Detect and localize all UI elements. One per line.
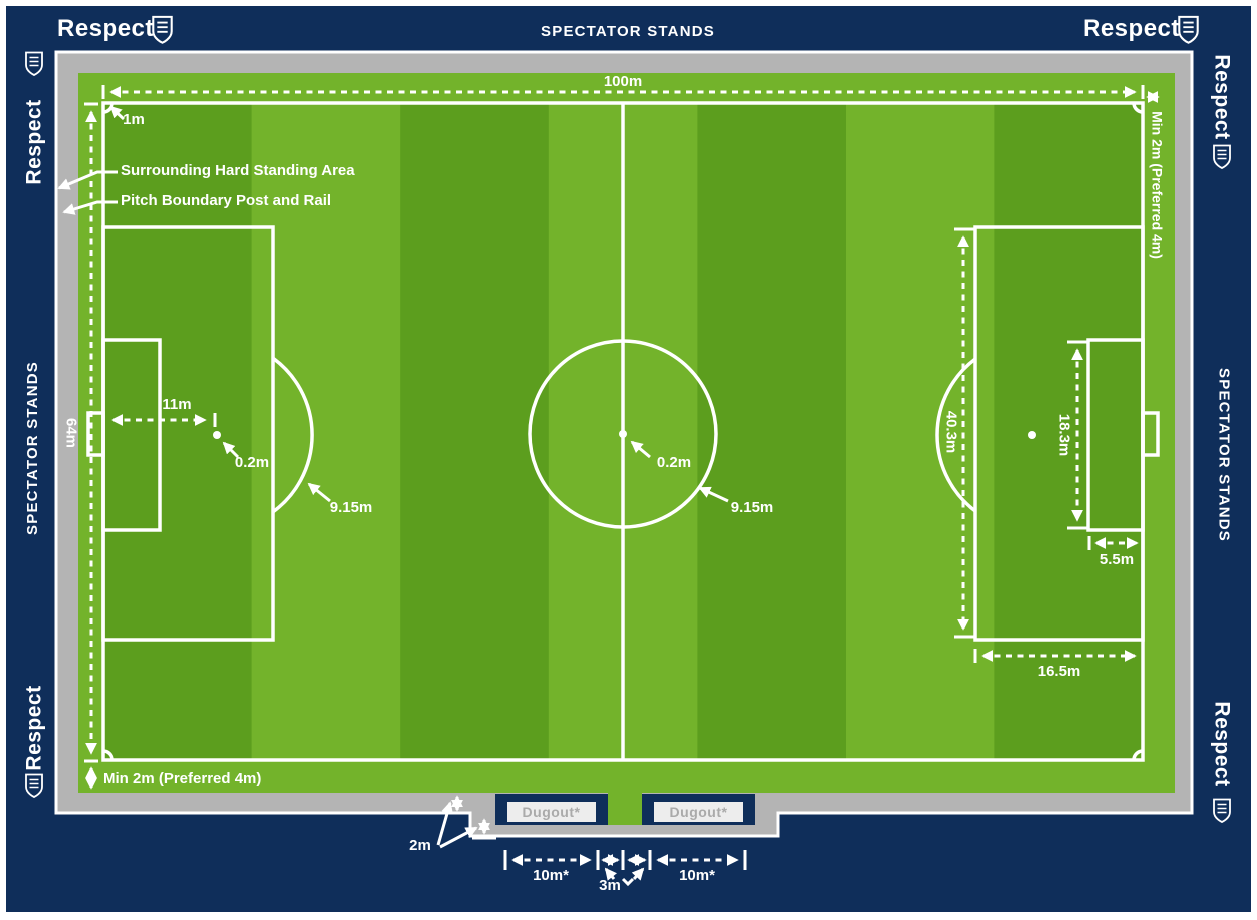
centre-spot xyxy=(619,430,627,438)
label-runoff-bottom: Min 2m (Preferred 4m) xyxy=(103,771,261,788)
label-runoff-right: Min 2m (Preferred 4m) xyxy=(1149,111,1164,259)
dugout-left-label: Dugout* xyxy=(507,802,596,822)
spectator-stands-left: SPECTATOR STANDS xyxy=(25,361,42,535)
label-centre-spot-diameter: 0.2m xyxy=(657,455,691,472)
label-boundary-offset: 1m xyxy=(123,112,145,129)
label-hard-standing: Surrounding Hard Standing Area xyxy=(121,163,355,180)
dugout-right-label: Dugout* xyxy=(654,802,743,822)
label-penalty-spot-diameter: 0.2m xyxy=(235,455,269,472)
label-goal-area-width: 18.3m xyxy=(1055,414,1072,457)
penalty-spot-right xyxy=(1028,431,1036,439)
label-penalty-spot-distance: 11m xyxy=(162,397,191,414)
label-goal-area-depth: 5.5m xyxy=(1100,552,1134,569)
label-post-and-rail: Pitch Boundary Post and Rail xyxy=(121,193,331,210)
label-dugout-gap: 3m xyxy=(599,878,621,895)
pitch-grass xyxy=(78,73,1175,825)
label-pitch-width: 64m xyxy=(62,418,79,448)
label-standing-depth: 2m xyxy=(409,838,431,855)
respect-logo-right-bottom: Respect xyxy=(1210,701,1233,786)
label-penalty-area-depth: 16.5m xyxy=(1038,664,1081,681)
label-dugout-width-right: 10m* xyxy=(679,868,715,885)
pitch-diagram: Respect Respect SPECTATOR STANDS Respect… xyxy=(0,0,1257,920)
label-penalty-arc-radius: 9.15m xyxy=(330,500,373,517)
respect-logo-top-right: Respect xyxy=(1083,16,1180,42)
label-dugout-width-left: 10m* xyxy=(533,868,569,885)
label-pitch-length: 100m xyxy=(604,74,642,91)
dugout-gap-grass xyxy=(608,793,642,825)
penalty-spot-left xyxy=(213,431,221,439)
label-centre-circle-radius: 9.15m xyxy=(731,500,774,517)
label-penalty-area-width: 40.3m xyxy=(942,411,959,454)
respect-logo-top-left: Respect xyxy=(57,16,154,42)
spectator-stands-right: SPECTATOR STANDS xyxy=(1215,368,1232,542)
respect-logo-left-bottom: Respect xyxy=(22,685,45,770)
respect-logo-right-top: Respect xyxy=(1210,54,1233,139)
respect-logo-left-top: Respect xyxy=(22,99,45,184)
spectator-stands-top: SPECTATOR STANDS xyxy=(541,24,715,41)
